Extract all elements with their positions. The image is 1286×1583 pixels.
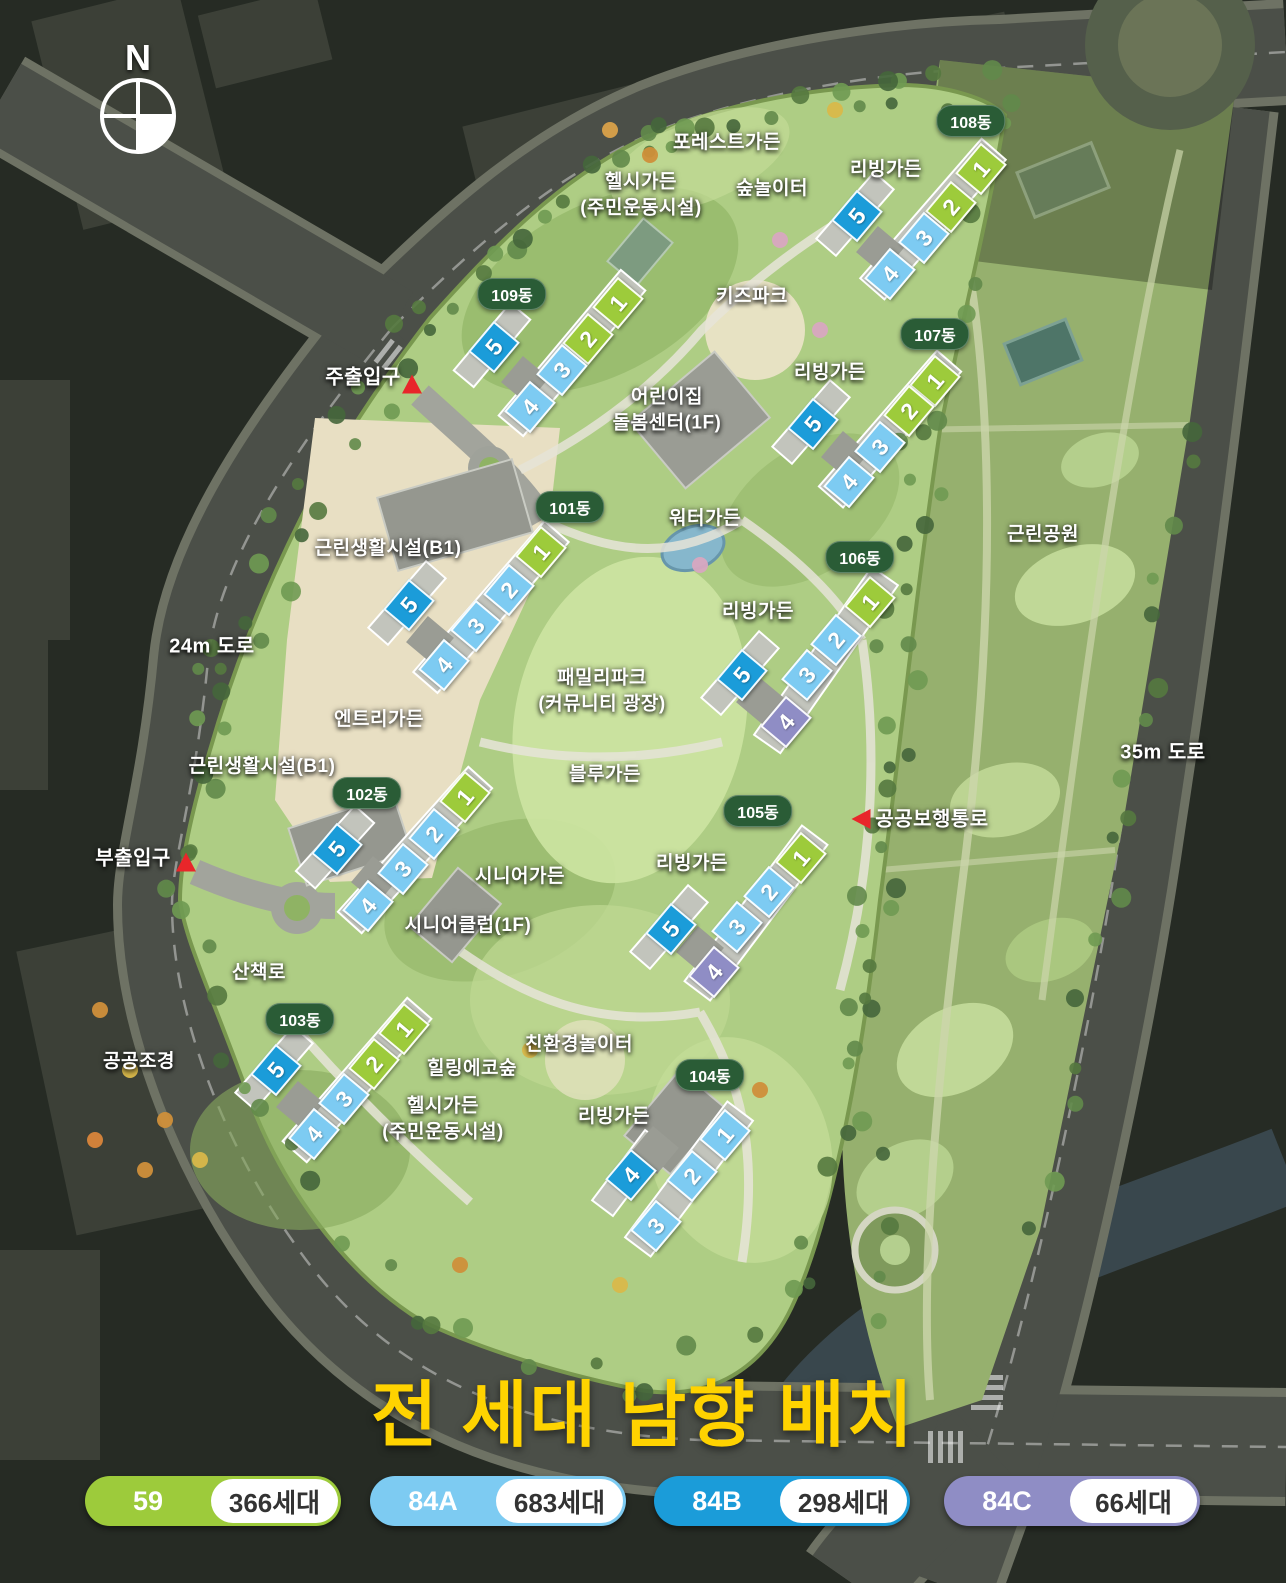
map-label-living-garden-108: 리빙가든 [850, 157, 922, 183]
unit-chip-106-1: 1 [844, 576, 896, 628]
unit-chip-109-1: 1 [592, 277, 644, 329]
unit-chip-104-1: 1 [699, 1109, 751, 1161]
map-label-forest-playground: 숲놀이터 [736, 176, 808, 202]
compass-rose-icon [98, 76, 178, 156]
map-label-healthy-garden-south: 헬시가든 (주민운동시설) [382, 1093, 504, 1144]
unit-chip-104-4: 4 [605, 1149, 657, 1201]
unit-chip-104-2: 2 [666, 1150, 718, 1202]
map-label-living-garden-104: 리빙가든 [578, 1104, 650, 1130]
map-label-neighborhood-facility-south: 근린생활시설(B1) [189, 754, 336, 780]
legend-type-label: 84B [654, 1476, 780, 1526]
entrance-arrow-public-walkway [852, 809, 871, 829]
map-label-living-garden-106: 리빙가든 [722, 599, 794, 625]
unit-chip-101-2: 2 [483, 564, 535, 616]
legend-item-84C: 84C66세대 [944, 1476, 1200, 1526]
unit-chip-101-3: 3 [450, 600, 502, 652]
map-label-living-garden-107: 리빙가든 [794, 360, 866, 386]
unit-chip-105-1: 1 [775, 832, 827, 884]
legend-item-59: 59366세대 [85, 1476, 341, 1526]
unit-chip-108-5: 5 [831, 190, 883, 242]
map-label-daycare-center: 어린이집 돌봄센터(1F) [613, 384, 722, 435]
compass-north-label: N [98, 40, 178, 76]
legend-item-84B: 84B298세대 [654, 1476, 910, 1526]
unit-chip-105-5: 5 [645, 903, 697, 955]
unit-chip-102-3: 3 [377, 843, 429, 895]
unit-chip-109-4: 4 [504, 381, 556, 433]
legend-count-label: 683세대 [496, 1479, 623, 1523]
unit-chip-104-3: 3 [630, 1200, 682, 1252]
unit-chip-107-5: 5 [787, 398, 839, 450]
legend-type-label: 84A [370, 1476, 496, 1526]
building-badge-104: 104동 [675, 1059, 744, 1091]
map-overlay: N 전 세대 남향 배치 59366세대84A683세대84B298세대84C6… [0, 0, 1286, 1583]
map-label-forest-garden: 포레스트가든 [673, 130, 781, 156]
entrance-label-public-walkway: 공공보행통로 [875, 807, 988, 834]
site-plan-map: N 전 세대 남향 배치 59366세대84A683세대84B298세대84C6… [0, 0, 1286, 1583]
building-badge-106: 106동 [825, 541, 894, 573]
entrance-label-main-entrance: 주출입구 [325, 365, 401, 392]
map-label-water-garden: 워터가든 [669, 506, 741, 532]
entrance-arrow-sub-entrance [176, 853, 196, 872]
unit-chip-103-5: 5 [250, 1044, 302, 1096]
unit-chip-101-1: 1 [515, 526, 567, 578]
entrance-arrow-main-entrance [402, 375, 422, 394]
legend-count-label: 366세대 [211, 1479, 338, 1523]
road-label-road-24m: 24m 도로 [169, 634, 254, 661]
map-label-blue-garden: 블루가든 [569, 762, 641, 788]
entrance-label-sub-entrance: 부출입구 [95, 846, 171, 873]
unit-chip-106-4: 4 [760, 696, 812, 748]
map-label-senior-garden: 시니어가든 [475, 864, 565, 890]
unit-chip-106-5: 5 [716, 649, 768, 701]
unit-chip-102-4: 4 [342, 880, 394, 932]
legend-type-label: 84C [944, 1476, 1070, 1526]
unit-chip-101-4: 4 [418, 639, 470, 691]
map-label-public-landscape: 공공조경 [103, 1049, 175, 1075]
legend-count-label: 298세대 [780, 1479, 907, 1523]
unit-chip-108-1: 1 [955, 143, 1007, 195]
map-label-kids-park: 키즈파크 [716, 284, 788, 310]
road-label-road-35m: 35m 도로 [1120, 740, 1205, 767]
map-label-walking-trail: 산책로 [232, 960, 286, 986]
unit-chip-102-2: 2 [408, 808, 460, 860]
map-label-senior-club: 시니어클럽(1F) [405, 913, 532, 939]
unit-chip-105-3: 3 [711, 901, 763, 953]
map-label-healing-eco-forest: 힐링에코숲 [427, 1056, 517, 1082]
legend-type-label: 59 [85, 1476, 211, 1526]
map-label-family-park: 패밀리파크 (커뮤니티 광장) [538, 665, 665, 716]
unit-type-legend: 59366세대84A683세대84B298세대84C66세대 [0, 1476, 1286, 1530]
legend-item-84A: 84A683세대 [370, 1476, 626, 1526]
map-label-neighborhood-facility-north: 근린생활시설(B1) [315, 536, 462, 562]
building-badge-108: 108동 [936, 105, 1005, 137]
map-label-healthy-garden-north: 헬시가든 (주민운동시설) [580, 169, 702, 220]
map-label-eco-playground: 친환경놀이터 [525, 1032, 633, 1058]
unit-chip-102-5: 5 [311, 823, 363, 875]
map-label-neighborhood-park: 근린공원 [1007, 522, 1079, 548]
page-title: 전 세대 남향 배치 [0, 1356, 1286, 1461]
building-badge-107: 107동 [900, 318, 969, 350]
building-badge-109: 109동 [477, 278, 546, 310]
map-label-living-garden-105: 리빙가든 [656, 851, 728, 877]
building-badge-102: 102동 [332, 777, 401, 809]
compass: N [98, 40, 178, 161]
unit-chip-101-5: 5 [383, 579, 435, 631]
unit-chip-107-4: 4 [823, 456, 875, 508]
legend-count-label: 66세대 [1070, 1479, 1197, 1523]
map-label-entry-garden: 엔트리가든 [334, 707, 424, 733]
building-badge-105: 105동 [723, 795, 792, 827]
building-badge-101: 101동 [535, 491, 604, 523]
unit-chip-108-4: 4 [864, 248, 916, 300]
unit-chip-109-5: 5 [468, 321, 520, 373]
unit-chip-105-2: 2 [743, 866, 795, 918]
unit-chip-105-4: 4 [688, 946, 740, 998]
unit-chip-102-1: 1 [439, 771, 491, 823]
building-badge-103: 103동 [265, 1003, 334, 1035]
